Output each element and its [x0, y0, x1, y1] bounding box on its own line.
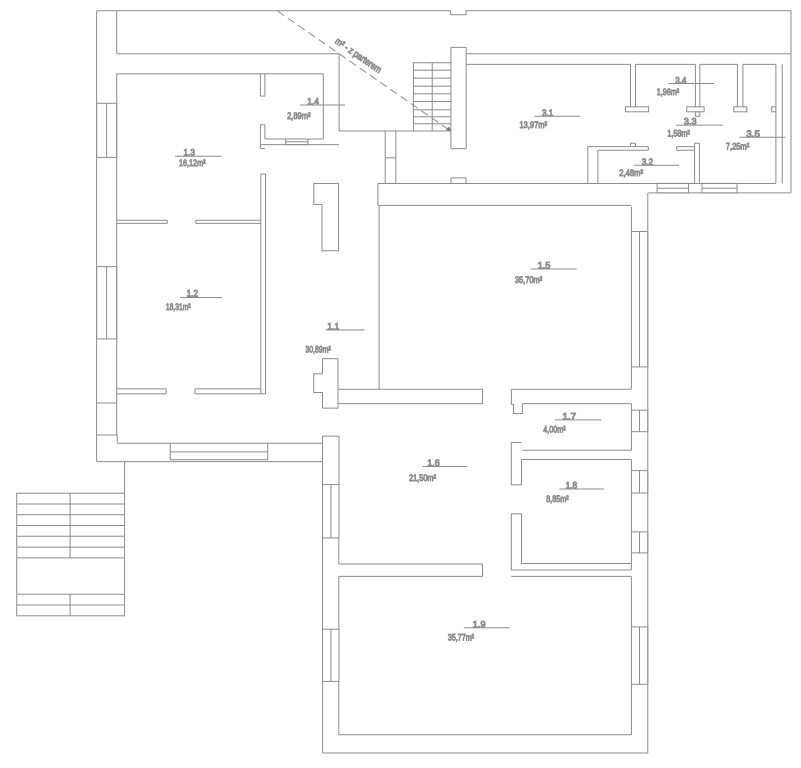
- svg-text:35,77m²: 35,77m²: [448, 633, 475, 644]
- svg-text:2,89m²: 2,89m²: [287, 111, 311, 122]
- svg-text:21,50m²: 21,50m²: [409, 473, 437, 484]
- svg-text:1.2: 1.2: [187, 289, 199, 300]
- svg-text:7,25m²: 7,25m²: [726, 142, 750, 153]
- svg-text:1.9: 1.9: [473, 619, 486, 630]
- svg-text:13,97m²: 13,97m²: [520, 120, 548, 131]
- svg-text:1.8: 1.8: [566, 481, 578, 492]
- svg-text:1.4: 1.4: [307, 97, 319, 108]
- svg-text:2,48m²: 2,48m²: [619, 168, 643, 179]
- svg-text:4,00m²: 4,00m²: [543, 425, 566, 436]
- svg-text:3.5: 3.5: [746, 129, 760, 140]
- svg-text:8,85m²: 8,85m²: [546, 494, 569, 505]
- svg-text:1.7: 1.7: [562, 412, 576, 423]
- svg-text:3.3: 3.3: [684, 117, 697, 128]
- svg-text:3.1: 3.1: [542, 108, 553, 119]
- svg-text:1,58m²: 1,58m²: [667, 129, 690, 140]
- svg-text:3.2: 3.2: [642, 157, 653, 168]
- svg-text:18,31m²: 18,31m²: [166, 302, 191, 313]
- svg-text:1.1: 1.1: [327, 321, 339, 332]
- svg-text:16,12m²: 16,12m²: [179, 158, 206, 169]
- svg-text:1,96m²: 1,96m²: [657, 87, 680, 98]
- svg-text:1.5: 1.5: [538, 261, 551, 272]
- svg-text:35,70m²: 35,70m²: [515, 275, 543, 286]
- svg-text:3.4: 3.4: [675, 76, 687, 87]
- svg-text:30,89m²: 30,89m²: [305, 345, 331, 356]
- svg-text:1.6: 1.6: [427, 458, 440, 469]
